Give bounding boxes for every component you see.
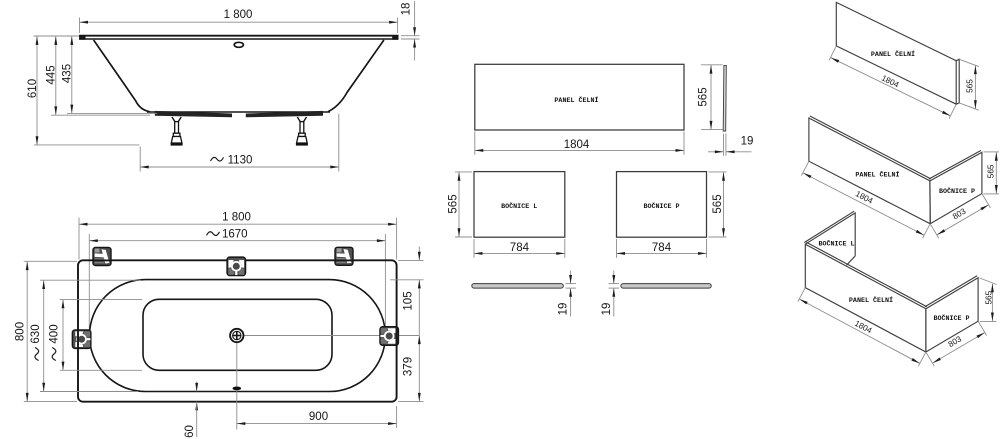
svg-text:610: 610: [27, 79, 39, 98]
svg-text:630: 630: [30, 324, 42, 343]
svg-text:PANEL ČELNÍ: PANEL ČELNÍ: [849, 295, 893, 305]
svg-text:784: 784: [510, 242, 530, 254]
svg-text:400: 400: [49, 324, 61, 343]
svg-text:1670: 1670: [222, 228, 248, 240]
svg-text:379: 379: [403, 357, 415, 376]
svg-text:18: 18: [401, 3, 413, 16]
svg-text:565: 565: [987, 164, 996, 178]
svg-text:BOČNICE P: BOČNICE P: [933, 313, 969, 323]
svg-text:BOČNICE L: BOČNICE L: [501, 201, 537, 211]
svg-text:BOČNICE P: BOČNICE P: [643, 201, 679, 211]
svg-text:BOČNICE L: BOČNICE L: [818, 238, 854, 248]
svg-text:1 800: 1 800: [224, 9, 253, 21]
svg-text:BOČNICE P: BOČNICE P: [939, 186, 975, 196]
svg-text:445: 445: [46, 65, 58, 84]
svg-text:565: 565: [712, 194, 724, 213]
svg-text:565: 565: [966, 79, 975, 93]
svg-text:PANEL ČELNÍ: PANEL ČELNÍ: [855, 170, 899, 180]
svg-text:1804: 1804: [564, 139, 590, 151]
svg-text:1 800: 1 800: [222, 212, 251, 224]
svg-text:565: 565: [447, 194, 459, 213]
svg-text:565: 565: [697, 87, 709, 106]
svg-text:60: 60: [184, 425, 196, 438]
svg-text:PANEL ČELNÍ: PANEL ČELNÍ: [554, 95, 598, 105]
svg-text:1130: 1130: [228, 154, 253, 166]
svg-text:19: 19: [601, 303, 613, 316]
svg-text:784: 784: [652, 242, 672, 254]
svg-text:435: 435: [61, 64, 73, 83]
svg-text:19: 19: [558, 303, 570, 316]
svg-text:19: 19: [741, 136, 754, 148]
svg-text:900: 900: [309, 411, 328, 423]
svg-text:565: 565: [984, 290, 993, 304]
svg-text:800: 800: [15, 322, 27, 341]
svg-text:PANEL ČELNÍ: PANEL ČELNÍ: [871, 49, 915, 59]
svg-text:105: 105: [403, 291, 415, 310]
